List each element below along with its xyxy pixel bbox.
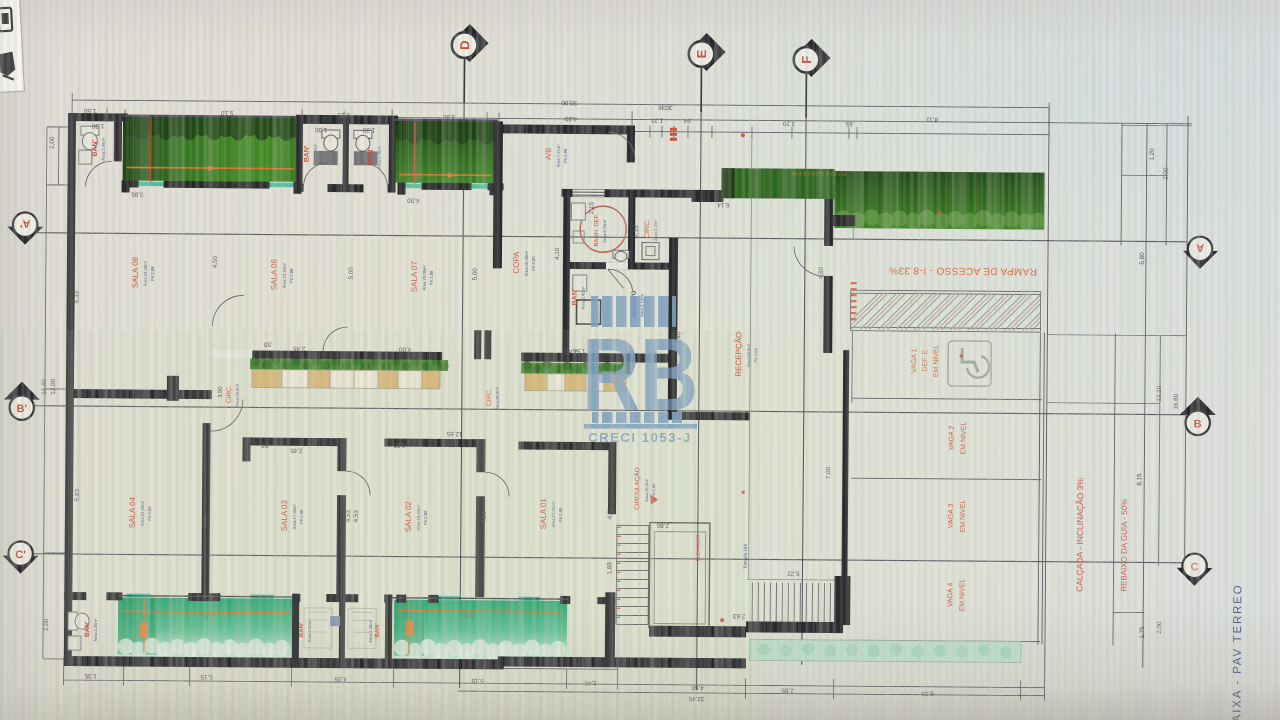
svg-text:Área:2,45m²: Área:2,45m²: [581, 286, 586, 310]
svg-text:3,60: 3,60: [442, 113, 455, 120]
svg-text:BAN': BAN': [299, 622, 305, 637]
svg-text:RECEPÇÃO: RECEPÇÃO: [734, 332, 743, 377]
svg-text:Tomada 16A: Tomada 16A: [743, 544, 748, 569]
svg-text:4,20: 4,20: [564, 115, 577, 122]
svg-text:F: F: [799, 56, 814, 64]
svg-text:COPA: COPA: [512, 251, 521, 274]
svg-text:4,53: 4,53: [345, 510, 352, 523]
svg-text:1,20: 1,20: [1149, 148, 1156, 161]
svg-text:BAN': BAN': [375, 623, 381, 638]
svg-text:2,15: 2,15: [588, 201, 595, 214]
svg-text:5,00: 5,00: [348, 267, 355, 280]
svg-text:32,45: 32,45: [688, 695, 704, 702]
svg-text:Área:2,46m²: Área:2,46m²: [377, 145, 382, 169]
svg-text:4,05: 4,05: [334, 675, 347, 682]
svg-text:,3036: ,3036: [658, 104, 674, 111]
svg-text:Pé:2,88: Pé:2,88: [563, 148, 568, 163]
svg-text:Área:28,9m²: Área:28,9m²: [235, 383, 240, 407]
svg-text:Pé:2,88: Pé:2,88: [558, 507, 563, 522]
svg-text:5,80: 5,80: [1139, 252, 1146, 265]
svg-text:6,35: 6,35: [921, 690, 934, 697]
svg-text:Área:22,43m²: Área:22,43m²: [140, 500, 145, 526]
svg-text:BAN': BAN': [304, 145, 311, 162]
svg-text:VAGA 4: VAGA 4: [947, 583, 954, 608]
svg-text:1,88: 1,88: [606, 562, 613, 575]
svg-text:1,30: 1,30: [362, 126, 375, 133]
svg-text:BAN': BAN': [92, 139, 99, 156]
svg-text:VAGA 1: VAGA 1: [911, 348, 918, 373]
svg-text:16,60: 16,60: [1173, 393, 1180, 409]
svg-text:DEF. E: DEF. E: [922, 349, 929, 371]
svg-text:1,30: 1,30: [91, 122, 104, 129]
svg-text:Área:2,45m²: Área:2,45m²: [307, 619, 312, 643]
svg-text:1,30: 1,30: [314, 126, 327, 133]
svg-text:Área:18,33m²: Área:18,33m²: [416, 504, 421, 530]
svg-text:SALA 02: SALA 02: [404, 501, 413, 533]
svg-text:C: C: [1191, 561, 1199, 573]
svg-text:3,50: 3,50: [218, 386, 224, 398]
svg-text:Pé:2,88: Pé:2,88: [423, 510, 428, 525]
svg-text:RAMPA DE ACESSO - I-8.33%: RAMPA DE ACESSO - I-8.33%: [889, 264, 1037, 276]
svg-text:1,45: 1,45: [584, 679, 597, 686]
svg-text:CIRC.: CIRC.: [226, 385, 233, 403]
svg-text:SALA 03: SALA 03: [280, 500, 289, 532]
svg-text:ELEVADOR: ELEVADOR: [696, 534, 702, 561]
svg-text:CIRCULAÇÃO: CIRCULAÇÃO: [632, 467, 641, 510]
svg-text:4,60: 4,60: [691, 684, 704, 691]
svg-text:Pé:2,88: Pé:2,88: [150, 266, 155, 281]
svg-text:3,05: 3,05: [337, 111, 350, 118]
svg-text:SALA 08: SALA 08: [131, 256, 140, 288]
svg-text:Área:16,2m²: Área:16,2m²: [644, 478, 649, 502]
svg-text:SALA 01: SALA 01: [539, 498, 548, 530]
svg-text:A/B: A/B: [544, 148, 553, 160]
svg-text:A': A': [20, 217, 31, 229]
svg-text:,65: ,65: [845, 120, 854, 127]
svg-text:7,00: 7,00: [825, 466, 832, 479]
svg-text:Área:2,2m²: Área:2,2m²: [653, 220, 658, 241]
svg-text:Pé:2,88: Pé:2,88: [289, 268, 294, 283]
svg-text:BAN': BAN': [84, 621, 91, 637]
svg-text:Área:28,9m²: Área:28,9m²: [495, 386, 500, 410]
svg-text:AIXA - PAV TERREO: AIXA - PAV TERREO: [1231, 584, 1244, 720]
svg-text:2,00: 2,00: [49, 136, 56, 149]
svg-text:B: B: [1194, 418, 1202, 430]
svg-text:Área:98,6m²: Área:98,6m²: [746, 343, 751, 367]
svg-text:4,00: 4,00: [202, 515, 209, 528]
svg-text:4,53: 4,53: [353, 510, 360, 523]
svg-text:5,10: 5,10: [220, 109, 233, 116]
svg-text:1,25: 1,25: [650, 117, 663, 124]
svg-text:A: A: [1196, 241, 1204, 253]
svg-text:Área:2,45m²: Área:2,45m²: [101, 137, 106, 161]
svg-text:Área:2,46m²: Área:2,46m²: [313, 143, 318, 167]
svg-text:4,80: 4,80: [818, 266, 825, 279]
svg-text:Pé:2,88: Pé:2,88: [429, 270, 434, 285]
svg-text:EM NIVEL: EM NIVEL: [933, 344, 940, 377]
svg-text:4,10: 4,10: [554, 247, 561, 260]
svg-text:EM NIVEL: EM NIVEL: [960, 500, 967, 533]
svg-text:Área:19,33m²: Área:19,33m²: [282, 262, 287, 288]
svg-text:5,15: 5,15: [200, 673, 213, 680]
svg-text:4,52: 4,52: [607, 507, 614, 520]
svg-text:D: D: [457, 40, 472, 50]
svg-text:2,15: 2,15: [633, 225, 640, 238]
svg-text:Área:24,28m²: Área:24,28m²: [143, 260, 148, 286]
svg-text:Área:17,21m²: Área:17,21m²: [551, 502, 556, 528]
svg-text:Área:20,05m²: Área:20,05m²: [422, 264, 427, 290]
svg-text:12,10: 12,10: [1156, 385, 1163, 401]
svg-text:5,15: 5,15: [471, 677, 484, 684]
svg-text:3,85: 3,85: [131, 190, 144, 197]
svg-text:1,75: 1,75: [1139, 626, 1146, 639]
svg-text:Área:10,45m²: Área:10,45m²: [524, 250, 529, 276]
svg-text:CALÇADA - INCLINAÇÃO 3%: CALÇADA - INCLINAÇÃO 3%: [1074, 478, 1085, 592]
svg-text:2,63: 2,63: [733, 612, 746, 619]
svg-text:4,00: 4,00: [407, 197, 420, 204]
svg-text:EM NIVEL: EM NIVEL: [959, 579, 966, 612]
svg-text:VAGA 2: VAGA 2: [948, 426, 955, 451]
svg-text:Área:3,70m²: Área:3,70m²: [602, 219, 607, 243]
svg-text:BANH. DEF.: BANH. DEF.: [594, 213, 600, 246]
svg-text:12,65: 12,65: [446, 430, 462, 437]
svg-text:5,15: 5,15: [463, 612, 474, 618]
svg-text:16,60: 16,60: [41, 378, 48, 394]
svg-text:6,33: 6,33: [74, 290, 81, 303]
svg-text:EM NIVEL: EM NIVEL: [960, 422, 967, 455]
svg-text:6,14: 6,14: [717, 201, 730, 208]
svg-text:SALA 06: SALA 06: [270, 258, 279, 290]
svg-text:2,00: 2,00: [43, 618, 50, 631]
svg-text:CRECI 1053-J: CRECI 1053-J: [588, 430, 692, 445]
svg-text:8,15: 8,15: [1136, 473, 1143, 486]
svg-text:12,00: 12,00: [50, 378, 57, 394]
svg-text:CIRC.: CIRC.: [644, 219, 651, 238]
svg-text:Pé:2,88: Pé:2,88: [753, 347, 758, 362]
svg-text:Área:7,21m²: Área:7,21m²: [556, 144, 561, 168]
svg-text:4,00: 4,00: [393, 442, 406, 449]
svg-text:1,35: 1,35: [84, 672, 97, 679]
svg-text:B': B': [16, 403, 27, 415]
svg-text:5,22: 5,22: [787, 570, 800, 577]
svg-text:30,00: 30,00: [561, 99, 577, 106]
svg-text:SALA 04: SALA 04: [128, 496, 137, 528]
svg-text:,50: ,50: [261, 442, 270, 449]
svg-text:BAN': BAN': [368, 148, 375, 165]
svg-text:5,83: 5,83: [74, 488, 81, 501]
svg-text:4,53: 4,53: [481, 511, 488, 524]
svg-text:5,00: 5,00: [472, 268, 479, 281]
svg-text:SALA 07: SALA 07: [410, 261, 419, 293]
svg-text:Área:2,45m²: Área:2,45m²: [93, 618, 98, 642]
svg-text:2,00: 2,00: [1156, 621, 1163, 634]
svg-text:C': C': [15, 549, 26, 561]
svg-text:RUA B OESTE B OESTE: RUA B OESTE B OESTE: [792, 171, 847, 176]
svg-text:2,45: 2,45: [293, 345, 306, 352]
svg-text:2,85: 2,85: [781, 687, 794, 694]
svg-text:4,00: 4,00: [399, 346, 412, 353]
svg-text:VAGA 3: VAGA 3: [948, 504, 955, 529]
svg-text:Pé:2,88: Pé:2,88: [531, 256, 536, 271]
svg-text:Área:2,45m²: Área:2,45m²: [368, 619, 373, 643]
svg-text:5,15: 5,15: [203, 613, 214, 619]
svg-text:REBAIXO DA GUIA - 50%: REBAIXO DA GUIA - 50%: [1119, 499, 1129, 592]
svg-text:1,50: 1,50: [83, 107, 96, 114]
svg-text:2,00: 2,00: [1163, 167, 1170, 180]
svg-text:Pé:2,88: Pé:2,88: [651, 483, 656, 498]
svg-text:,94: ,94: [683, 117, 692, 124]
svg-text:4,50: 4,50: [212, 256, 219, 269]
svg-text:8,11: 8,11: [926, 116, 938, 123]
svg-text:2,86: 2,86: [656, 522, 669, 529]
svg-text:Pé:2,88: Pé:2,88: [299, 509, 304, 524]
svg-text:E: E: [694, 49, 709, 58]
svg-text:3,20: 3,20: [782, 120, 795, 127]
svg-text:BAN': BAN': [572, 288, 579, 305]
svg-text:,50: ,50: [263, 341, 272, 348]
svg-text:CIRC.: CIRC.: [486, 388, 493, 406]
svg-text:2,45: 2,45: [290, 447, 303, 454]
svg-text:Área:17,33m²: Área:17,33m²: [292, 503, 297, 529]
svg-text:Pé:2,88: Pé:2,88: [147, 506, 152, 521]
